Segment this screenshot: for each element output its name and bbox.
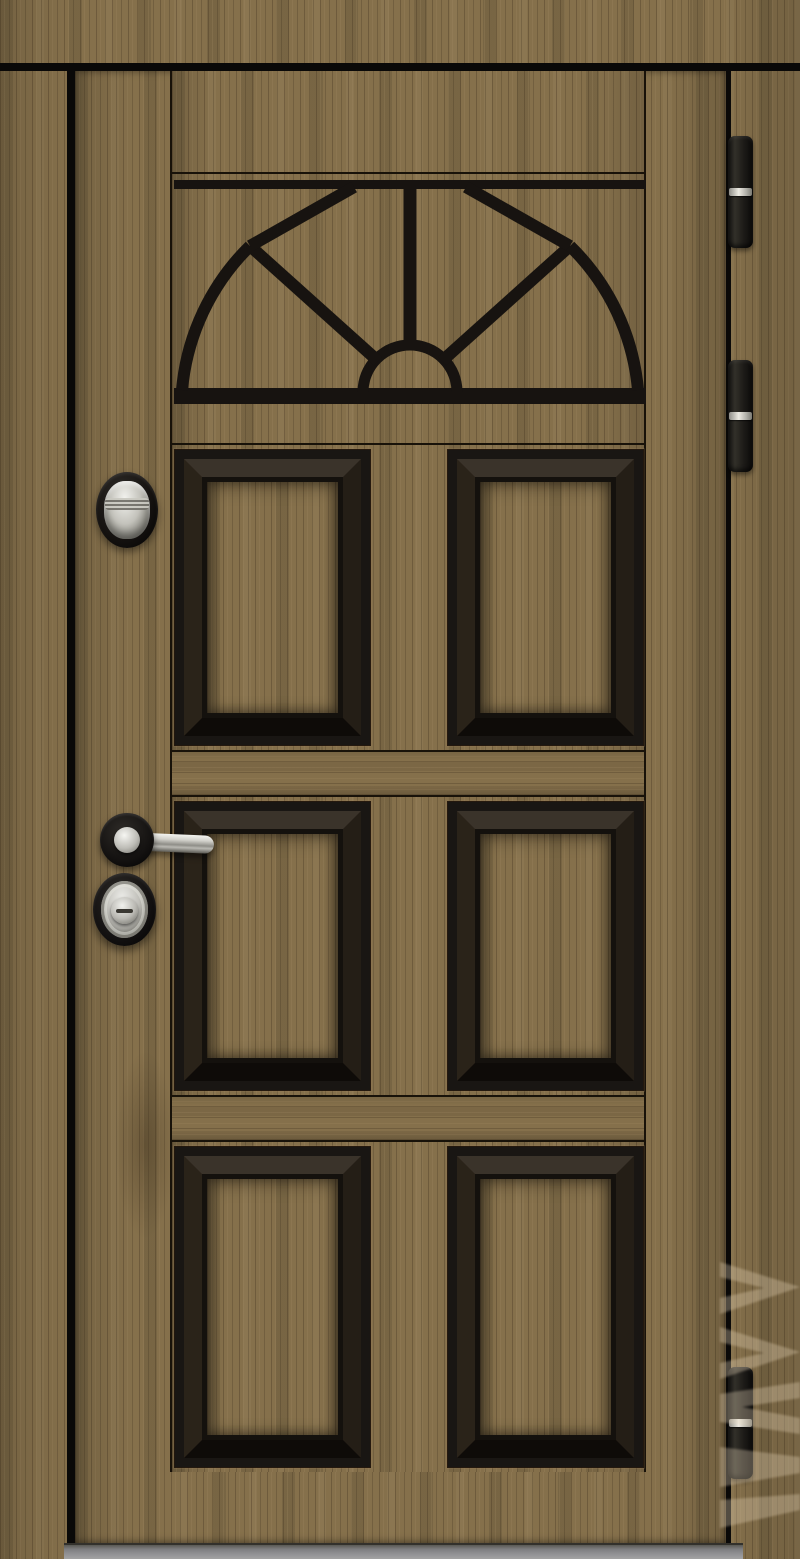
door-leaf bbox=[75, 70, 727, 1543]
panel-bevel bbox=[184, 459, 361, 736]
frame-gap-left bbox=[67, 63, 75, 1543]
fan-left-ray bbox=[250, 246, 378, 361]
fan-baseline-bar bbox=[174, 388, 646, 404]
sunburst-panel bbox=[172, 172, 644, 443]
fan-right-outer-arc bbox=[570, 246, 638, 390]
panel-field bbox=[202, 477, 343, 718]
panel-field bbox=[475, 829, 616, 1063]
door-product-photo bbox=[0, 0, 800, 1559]
hinge-top bbox=[728, 136, 753, 248]
raised-panel bbox=[175, 1147, 370, 1467]
raised-panel bbox=[448, 802, 643, 1090]
fan-left-upper-ray bbox=[250, 187, 354, 246]
fan-right-ray bbox=[442, 246, 570, 361]
brand-watermark bbox=[712, 1232, 800, 1552]
threshold-sill bbox=[64, 1543, 743, 1559]
panel-bevel bbox=[457, 459, 634, 736]
hinge-upper-middle bbox=[728, 360, 753, 472]
raised-panel bbox=[448, 450, 643, 745]
panel-field bbox=[475, 1174, 616, 1440]
upper-lock-cylinder-cover bbox=[104, 481, 150, 539]
cylinder-key-slot bbox=[116, 909, 133, 913]
handle-hub bbox=[114, 827, 140, 853]
panel-bevel bbox=[184, 1156, 361, 1458]
panel-row-3 bbox=[172, 1140, 644, 1472]
panel-row-2 bbox=[172, 795, 644, 1095]
lower-lock-chrome-plate bbox=[101, 881, 148, 938]
wood-knot bbox=[115, 1050, 175, 1240]
fan-left-outer-arc bbox=[182, 246, 250, 390]
lower-lock-escutcheon bbox=[93, 873, 156, 946]
lower-lock-cylinder bbox=[111, 897, 138, 924]
panel-bevel bbox=[457, 1156, 634, 1458]
panel-bevel bbox=[457, 811, 634, 1081]
mid-rail bbox=[172, 1095, 644, 1140]
panel-field bbox=[202, 829, 343, 1063]
fan-right-upper-ray bbox=[466, 187, 570, 246]
panel-field bbox=[475, 477, 616, 718]
mid-rail bbox=[172, 750, 644, 795]
hinge-chrome-ring bbox=[729, 188, 752, 196]
upper-lock-escutcheon bbox=[96, 472, 158, 548]
raised-panel bbox=[175, 450, 370, 745]
top-strip-panel bbox=[172, 71, 644, 172]
panel-field bbox=[202, 1174, 343, 1440]
upper-lock-ridges bbox=[105, 498, 149, 510]
hinge-chrome-ring bbox=[729, 412, 752, 420]
fan-arch bbox=[363, 345, 457, 392]
sunburst-fan-molding bbox=[172, 174, 648, 445]
panel-row-1 bbox=[172, 443, 644, 750]
frame-gap-top bbox=[0, 63, 800, 71]
decor-field bbox=[170, 71, 646, 1472]
raised-panel bbox=[448, 1147, 643, 1467]
